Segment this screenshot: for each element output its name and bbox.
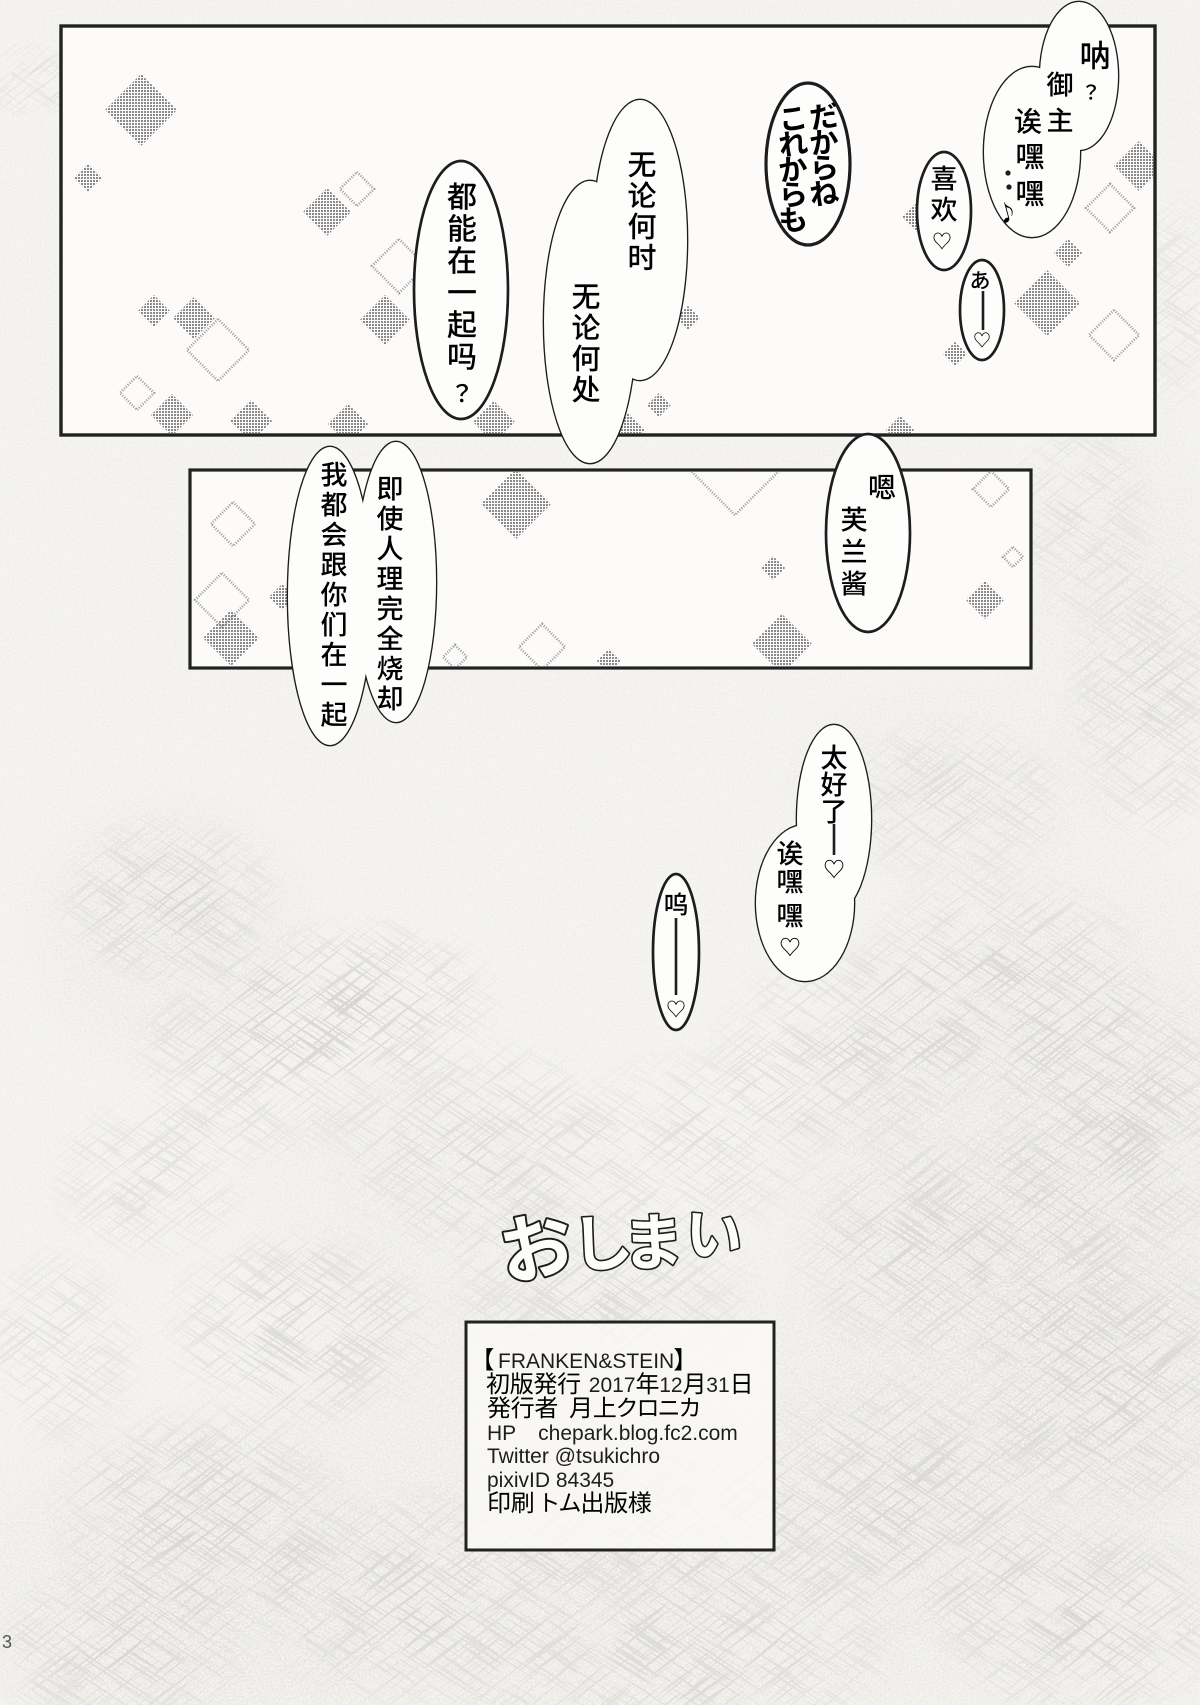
svg-text:pixivID 84345: pixivID 84345 — [487, 1469, 614, 1492]
svg-text:FRANKEN&STEIN: FRANKEN&STEIN — [498, 1350, 674, 1373]
svg-text:2017: 2017 — [589, 1374, 636, 1397]
svg-text:chepark.blog.fc2.com: chepark.blog.fc2.com — [538, 1422, 738, 1445]
svg-text:12: 12 — [659, 1374, 682, 1397]
svg-text:3: 3 — [2, 1632, 12, 1652]
svg-text:Twitter @tsukichro: Twitter @tsukichro — [487, 1445, 660, 1468]
svg-text:31: 31 — [706, 1374, 729, 1397]
svg-text:HP: HP — [487, 1422, 516, 1445]
